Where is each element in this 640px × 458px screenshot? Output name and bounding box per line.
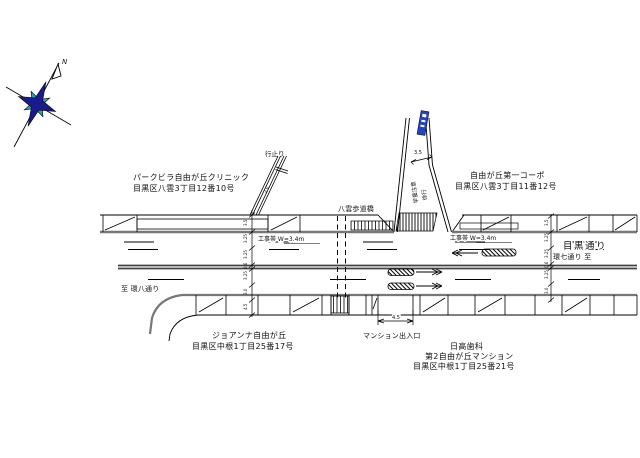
footbridge-landing-hatch (351, 221, 393, 230)
dim-left-2: 3.25 (243, 250, 248, 259)
dead-end-bar (276, 167, 289, 174)
hidaka-name-label: 日高歯科 (450, 341, 483, 351)
street-name-sign (417, 110, 429, 135)
dead-end-branch: 2.0 行止り (250, 149, 288, 215)
direction-east-label: 環七通り 至 (553, 252, 591, 261)
flow-arrow-upper (452, 250, 478, 256)
dim-left-3: 0.6 (243, 262, 248, 269)
entrance-dimension: 4.5 (378, 310, 413, 325)
hidaka-building-label: 第2自由が丘マンション (425, 351, 513, 361)
dim-left-4: 3.25 (243, 271, 248, 280)
joanna-name-label: ジョアンナ自由が丘 (212, 330, 286, 340)
entrance-label: マンション出入口 (363, 331, 421, 340)
work-zone-bar-lower-1 (388, 269, 414, 276)
compass-star-primary (9, 74, 64, 133)
site-map-page: N (0, 0, 640, 458)
labels: パークビラ自由が丘クリニック 目黒区八雲3丁目12番10号 自由が丘第一コーポ … (121, 170, 607, 371)
dim-left-6: 4.5 (243, 303, 248, 310)
direction-west-label: 至 環八通り (121, 284, 159, 293)
north-arrowhead-icon (52, 64, 61, 79)
flow-arrow-lower-1 (416, 269, 442, 275)
entrance-width-dim: 4.5 (392, 315, 400, 321)
dim-right-2: 3.25 (544, 249, 549, 258)
dim-right-5: 3.0 (544, 287, 549, 294)
side-street-width-dim: 3.5 (414, 150, 422, 156)
main-road (100, 215, 637, 341)
road-marking-text-2: 徐行 (419, 188, 429, 201)
dim-right-3: 0.6 (544, 261, 549, 268)
center-line (118, 266, 637, 269)
bottom-sidewalk-slashes (199, 298, 587, 312)
work-zone-bar-upper (482, 249, 516, 256)
footbridge-label: 八雲歩道橋 (338, 204, 374, 213)
dim-right-1: 3.25 (544, 233, 549, 242)
compass-rose: N (6, 58, 71, 147)
dim-left-5: 3.0 (243, 288, 248, 295)
corpo-address-label: 目黒区八雲3丁目11番12号 (455, 181, 557, 191)
footbridge-span-dashed (338, 216, 346, 299)
flow-arrow-lower-2 (416, 283, 442, 289)
dimension-chain-left: 3.5 3.25 3.25 0.6 3.25 3.0 4.5 (243, 210, 255, 318)
compass-north-label: N (62, 58, 68, 66)
footbridge (331, 216, 393, 313)
bottom-sidewalk-partitions (196, 295, 637, 315)
footbridge-stairs (331, 296, 349, 313)
top-frontage-structure (137, 219, 268, 229)
dim-left-0: 3.5 (243, 219, 248, 226)
dead-end-label: 行止り (265, 149, 285, 158)
clinic-name-label: パークビラ自由が丘クリニック (133, 172, 249, 182)
dim-left-1: 3.25 (243, 234, 248, 243)
work-zone-label-left: 工事帯 W=3.4m (258, 235, 304, 243)
site-map-drawing: N (0, 0, 640, 458)
crosswalk (396, 213, 437, 231)
joanna-address-label: 目黒区中根1丁目25番17号 (192, 341, 294, 351)
dead-end-edges (250, 156, 287, 215)
road-marking-text-1: 学童注意 (409, 180, 420, 203)
side-street: 3.5 学童注意 徐行 (394, 110, 452, 232)
top-frontage-structure-2 (460, 223, 518, 229)
work-zone-bar-lower-2 (388, 283, 414, 290)
work-zone-label-right: 工事帯 W=3.4m (450, 234, 496, 242)
corpo-name-label: 自由が丘第一コーポ (470, 170, 545, 180)
dim-right-0: 3.5 (544, 219, 549, 226)
main-road-name-label: 目黒通り (563, 241, 607, 252)
dim-right-4: 3.25 (544, 270, 549, 279)
clinic-address-label: 目黒区八雲3丁目12番10号 (133, 183, 235, 193)
hidaka-address-label: 目黒区中根1丁目25番21号 (413, 361, 515, 371)
